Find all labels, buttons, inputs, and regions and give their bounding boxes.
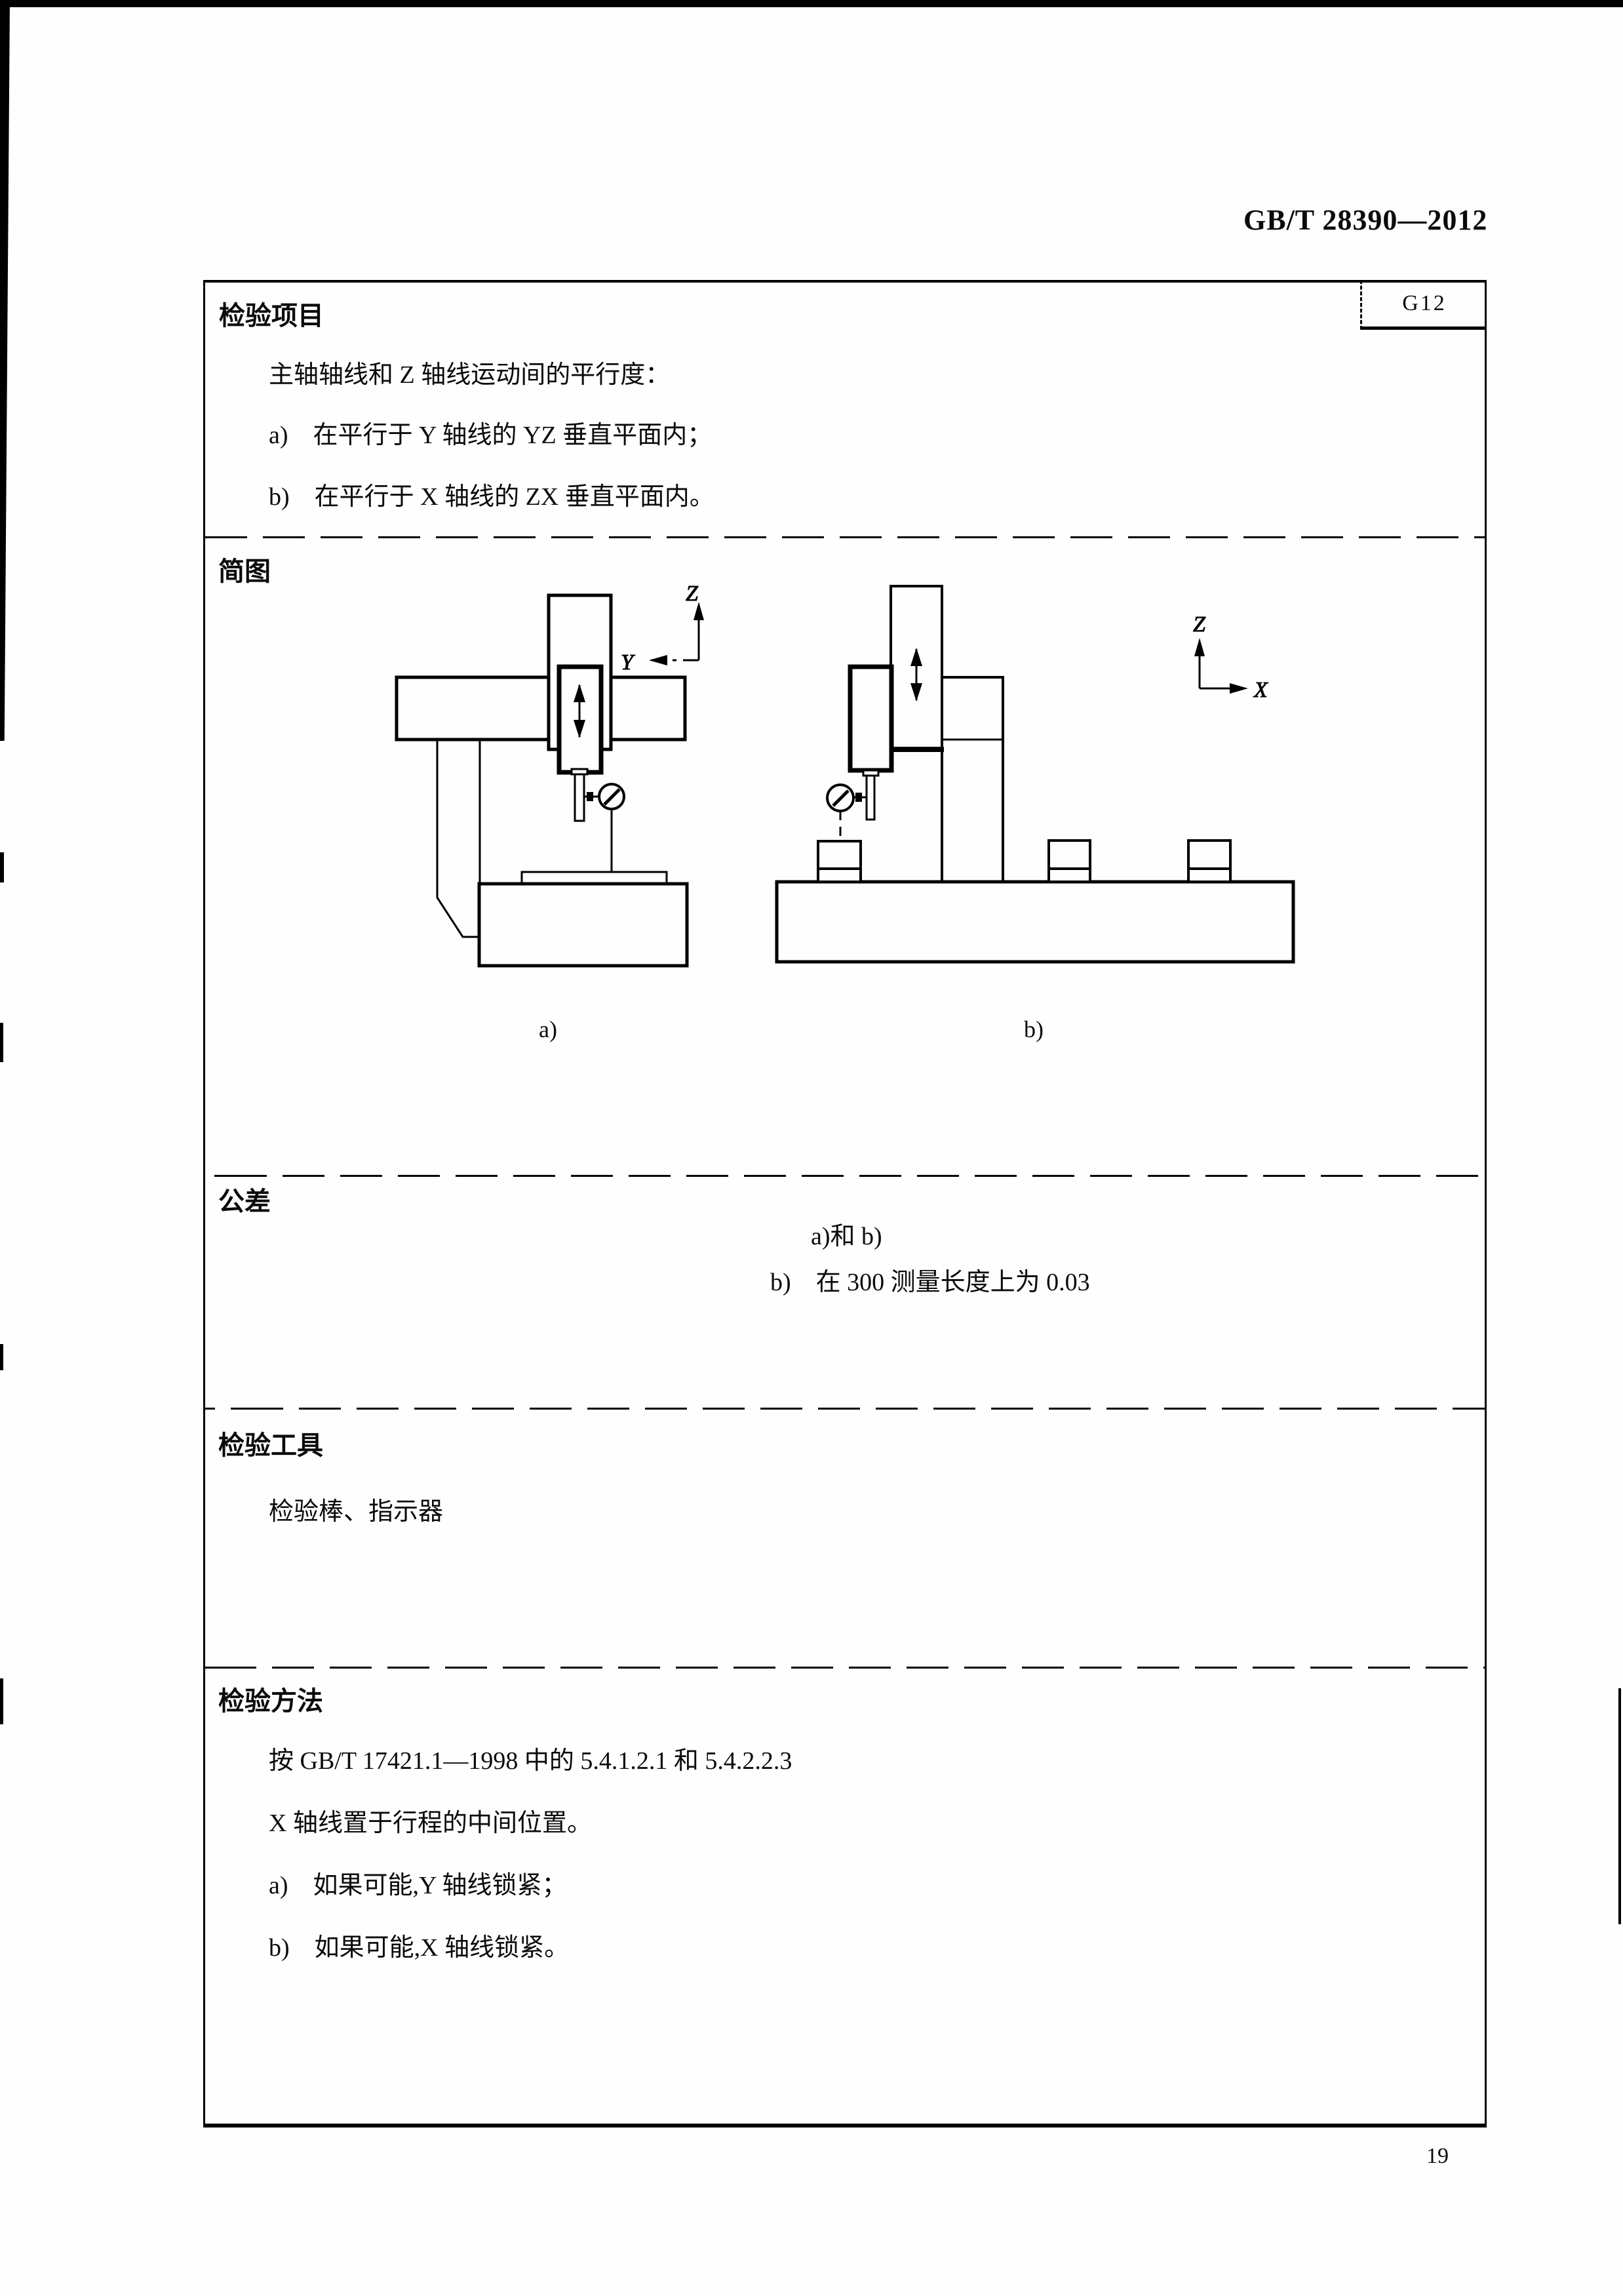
section-separator [205,1175,1485,1177]
section-label-inspection-item: 检验项目 [219,303,324,329]
scan-artifact-speck [0,1023,3,1062]
standard-number-header: GB/T 28390—2012 [1243,203,1487,237]
method-line-reference: 按 GB/T 17421.1—1998 中的 5.4.1.2.1 和 5.4.2… [269,1747,792,1776]
scan-artifact-speck [0,1678,3,1724]
section-separator [205,536,1485,538]
section-label-tolerance: 公差 [218,1189,271,1215]
diagram-a-label: a) [539,1018,557,1041]
method-line-position: X 轴线置于行程的中间位置。 [269,1810,592,1838]
tolerance-line-value: b) 在 300 测量长度上为 0.03 [770,1269,1090,1297]
section-separator [205,1408,1485,1410]
scan-artifact-speck [0,1344,3,1370]
section-label-method: 检验方法 [218,1688,323,1714]
inspection-table-frame [203,280,1487,2128]
method-line-b: b) 如果可能,X 轴线锁紧。 [269,1934,569,1963]
inspection-item-line: 主轴轴线和 Z 轴线运动间的平行度： [269,361,670,390]
item-code-badge: G12 [1360,280,1487,330]
scan-artifact-right-edge [1618,1688,1621,1924]
document-page: GB/T 28390—2012 G12 检验项目 主轴轴线和 Z 轴线运动间的平… [0,0,1623,2296]
item-code-text: G12 [1402,291,1447,316]
section-label-tools: 检验工具 [218,1433,323,1459]
method-line-a: a) 如果可能,Y 轴线锁紧； [269,1872,567,1901]
tolerance-line-ab: a)和 b) [811,1223,882,1252]
page-number: 19 [1426,2144,1449,2169]
inspection-item-line-a: a) 在平行于 Y 轴线的 YZ 垂直平面内； [269,422,712,450]
tools-line: 检验棒、指示器 [269,1498,443,1527]
scan-artifact-top-edge [0,0,1623,7]
section-label-diagram: 简图 [218,559,271,585]
scan-artifact-left-edge [0,0,10,741]
diagram-b-label: b) [1024,1018,1044,1041]
section-separator [205,1667,1485,1669]
scan-artifact-speck [0,852,4,882]
inspection-item-line-b: b) 在平行于 X 轴线的 ZX 垂直平面内。 [269,483,714,512]
